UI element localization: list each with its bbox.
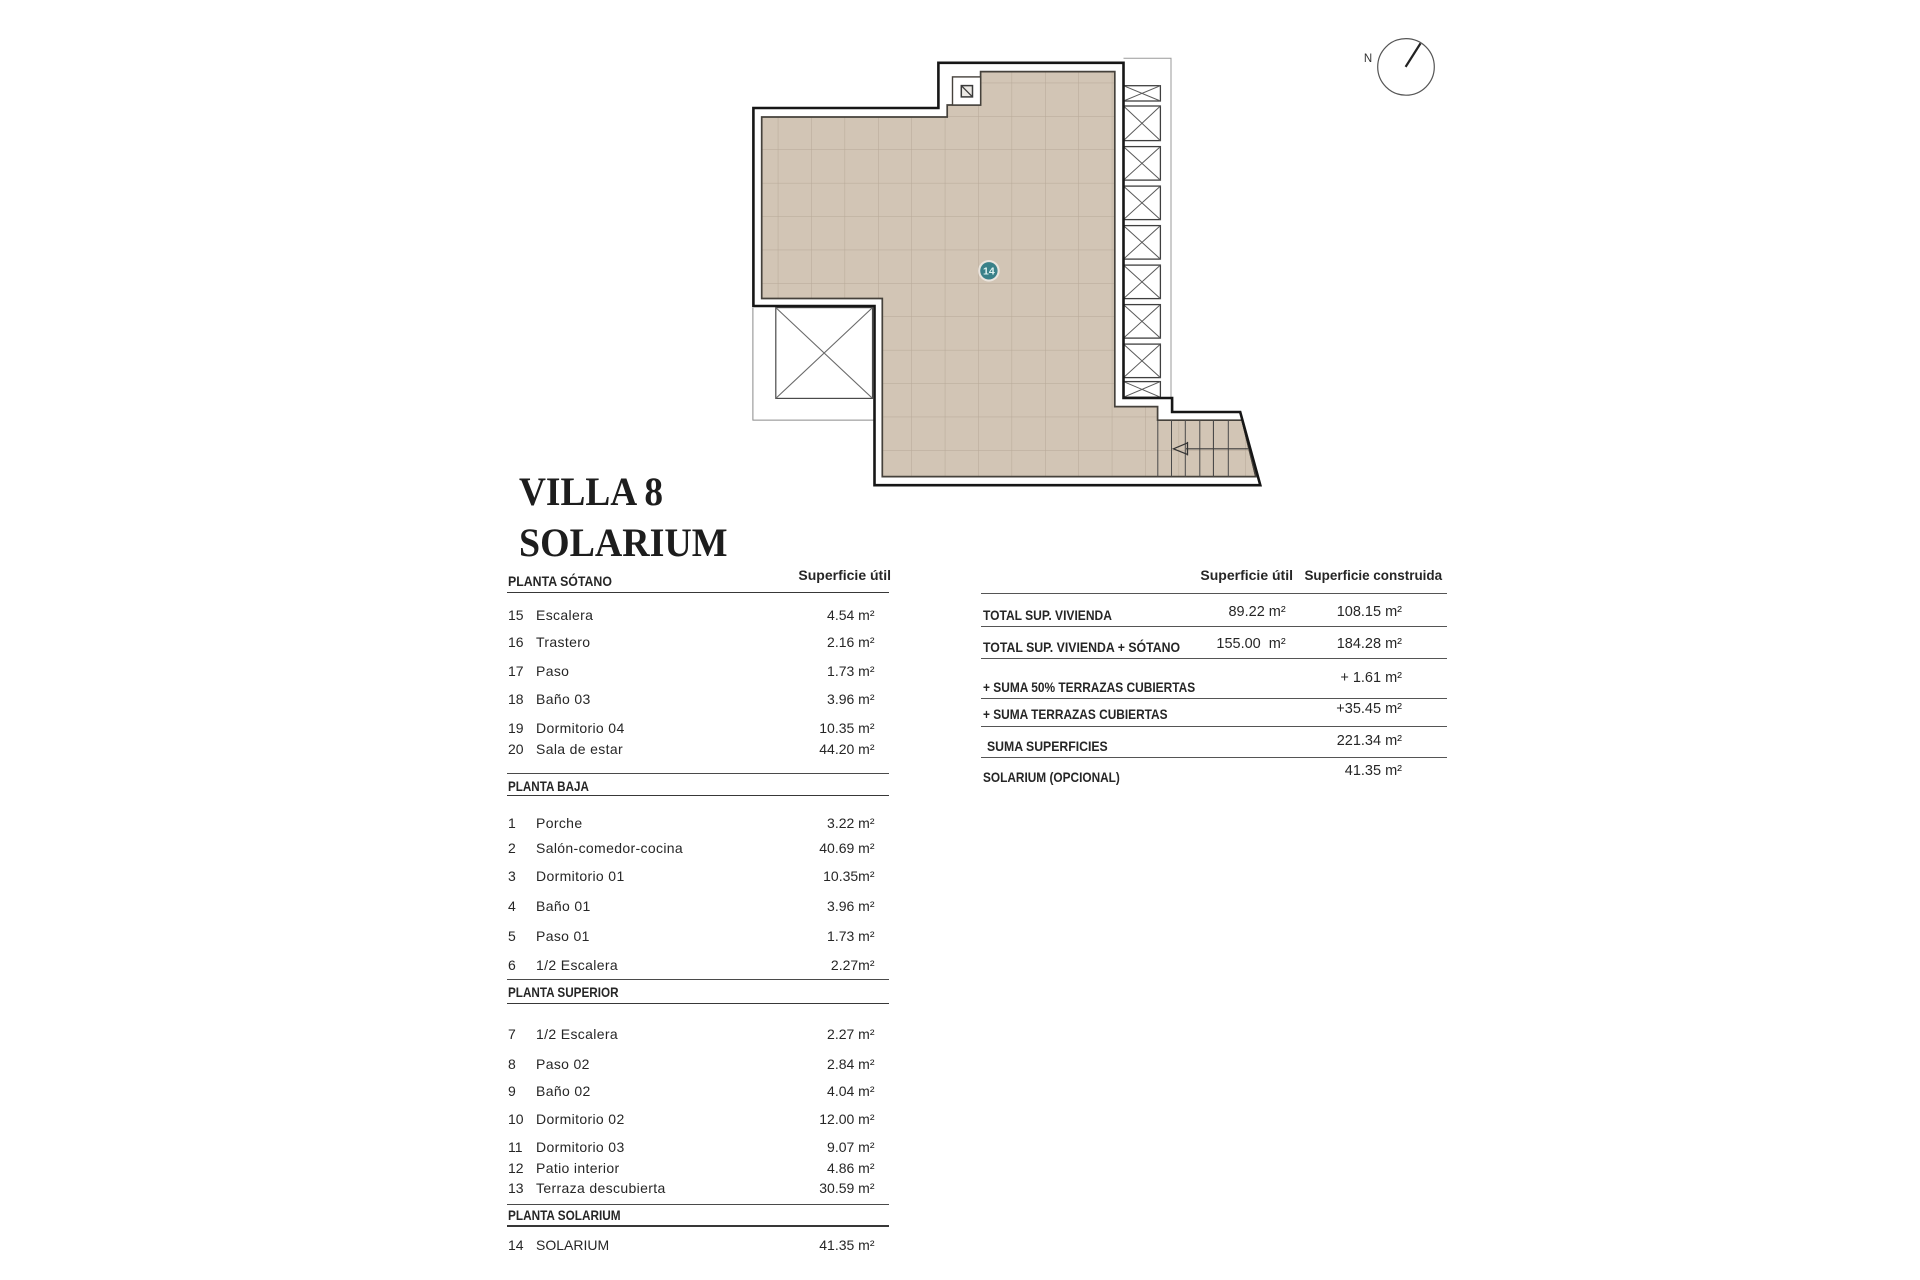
svg-text:N: N [1364, 53, 1372, 65]
svg-text:14: 14 [983, 266, 995, 278]
